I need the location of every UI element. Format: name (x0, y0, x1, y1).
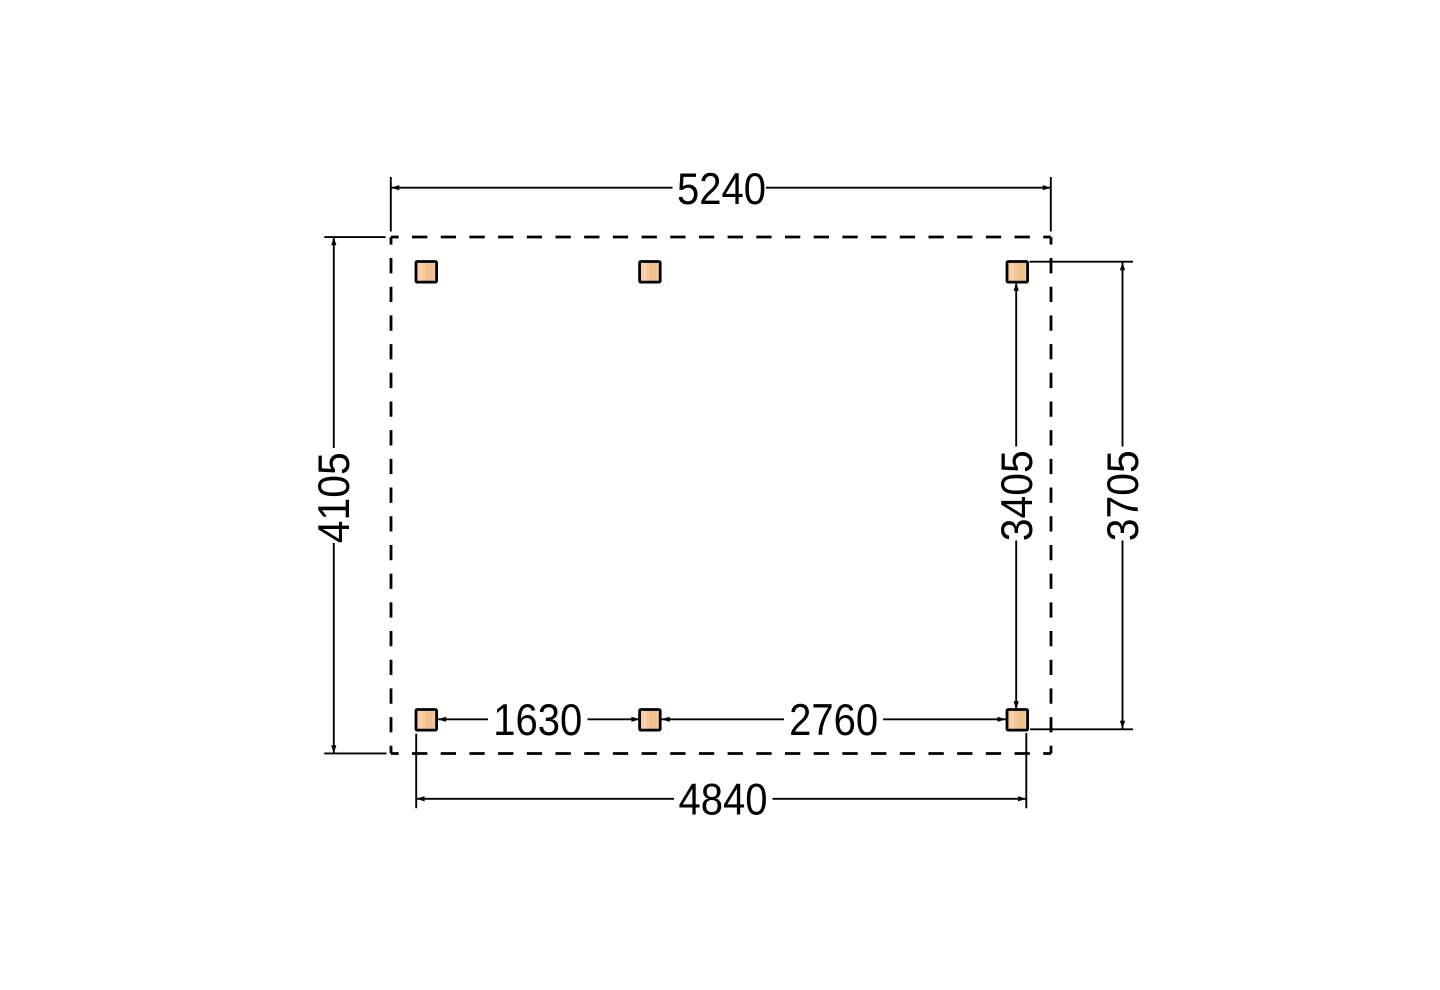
svg-text:3705: 3705 (1099, 450, 1148, 541)
svg-text:4840: 4840 (679, 776, 768, 825)
svg-text:2760: 2760 (789, 696, 878, 745)
svg-text:5240: 5240 (677, 165, 766, 214)
svg-text:1630: 1630 (493, 696, 582, 745)
svg-text:3405: 3405 (993, 450, 1042, 541)
svg-text:4105: 4105 (310, 452, 359, 543)
